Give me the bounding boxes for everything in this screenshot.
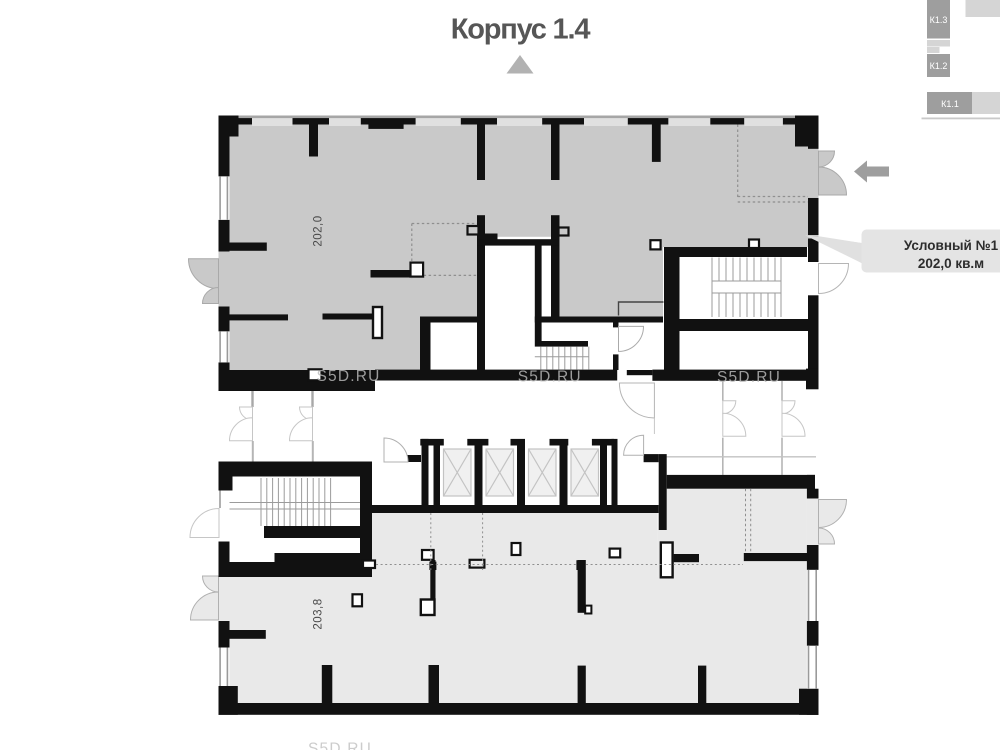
svg-text:203,8: 203,8	[313, 598, 325, 629]
svg-text:К1.3: К1.3	[930, 15, 948, 25]
svg-text:Условный №1: Условный №1	[904, 238, 999, 253]
svg-text:К1.1: К1.1	[941, 99, 959, 109]
svg-text:S5D.RU: S5D.RU	[308, 741, 372, 750]
svg-text:202,0: 202,0	[313, 215, 325, 246]
svg-text:202,0 кв.м: 202,0 кв.м	[918, 256, 984, 271]
svg-text:S5D.RU: S5D.RU	[316, 368, 380, 385]
svg-text:S5D.RU: S5D.RU	[717, 369, 781, 386]
svg-text:Корпус 1.4: Корпус 1.4	[451, 14, 591, 46]
svg-text:К1.2: К1.2	[930, 61, 948, 71]
svg-text:S5D.RU: S5D.RU	[518, 369, 582, 386]
